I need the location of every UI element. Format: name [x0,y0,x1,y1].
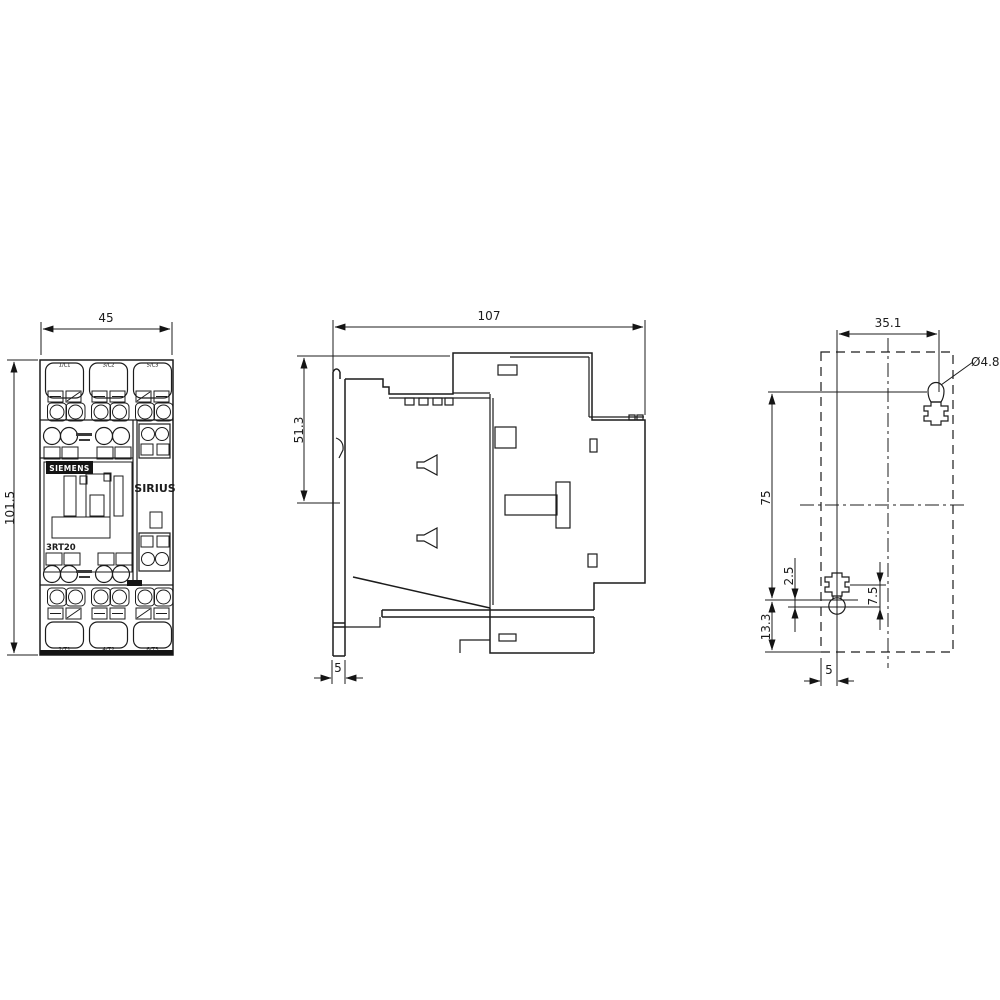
front-bottom-screw-slots [48,608,169,619]
release-lever-icon [417,455,437,475]
front-top-screws [48,403,174,421]
front-bottom-terminals: 2/T1 4/T2 6/T3 [46,588,174,653]
drilling-edge-offset-dimension: 5 [804,658,854,686]
series-label: SIRIUS [134,482,176,495]
brand-label-text: SIEMENS [49,464,89,473]
drilling-edge-offset-label: 5 [825,663,833,677]
front-view: 45 101.5 1/L1 3/L2 5/L3 [3,311,176,655]
drilling-slot-length-label: 7.5 [866,586,880,605]
front-width-dimension: 45 [41,311,172,355]
side-rail-clip-label: 5 [334,661,342,675]
front-accessory-module: SIRIUS [134,424,176,571]
side-interior-details [417,365,597,641]
terminal-label-5L3: 5/L3 [147,363,159,369]
side-profile-outline [345,353,645,653]
front-mechanism-detail [52,473,123,538]
front-lower-aux-row [44,553,143,586]
dimension-drawing: 45 101.5 1/L1 3/L2 5/L3 [0,0,1000,1000]
hole-diameter-label: Ø4.8 [971,355,1000,369]
terminal-label-2T1: 2/T1 [58,647,70,653]
front-upper-aux-row [44,428,132,460]
side-mounting-flange [333,369,380,656]
side-rail-clip-dimension: 5 [314,660,363,684]
front-height-dimension: 101.5 [3,360,38,655]
drilling-h-spacing-label: 35.1 [875,316,902,330]
drilling-plan: 35.1 Ø4.8 75 13.3 [759,316,1000,686]
drilling-center-offset-label: 2.5 [782,566,796,585]
terminal-label-1L1: 1/L1 [59,363,71,369]
top-keyhole-slot [924,383,948,426]
front-bottom-screws [48,588,174,606]
front-height-label: 101.5 [3,491,17,525]
side-upper-height-dimension: 51.3 [292,356,450,503]
side-depth-dimension: 107 [333,309,645,415]
front-width-label: 45 [98,311,113,325]
front-top-screw-slots [48,391,169,402]
hole-diameter-callout: Ø4.8 [941,355,1000,385]
side-view: 107 51.3 5 [292,309,645,684]
drilling-bottom-offset-label: 13.3 [759,614,773,641]
brand-label: SIEMENS [46,461,93,474]
terminal-label-4T2: 4/T2 [102,647,114,653]
side-depth-label: 107 [478,309,501,323]
dimension-drawing-canvas: 45 101.5 1/L1 3/L2 5/L3 [0,0,1000,1000]
drilling-slot-length-dimension: 7.5 [850,562,886,630]
release-lever-icon [417,528,437,548]
terminal-label-6T3: 6/T3 [146,647,159,653]
drilling-v-spacing-dimension: 75 [759,394,858,600]
front-top-terminals: 1/L1 3/L2 5/L3 [46,363,174,422]
side-upper-height-label: 51.3 [292,417,306,444]
drilling-centerlines [800,338,965,668]
model-label: 3RT20 [46,543,76,553]
terminal-label-3L2: 3/L2 [103,363,115,369]
drilling-bottom-offset-dimension: 13.3 [759,602,821,652]
drilling-v-spacing-label: 75 [759,490,773,505]
